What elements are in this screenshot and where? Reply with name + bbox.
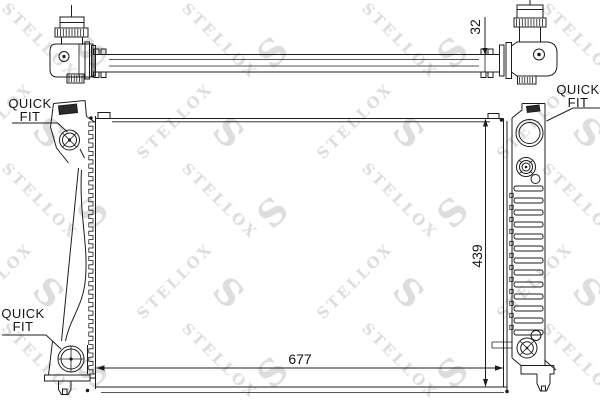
right-pipe-connector <box>500 0 558 84</box>
pipe-barbs <box>94 49 493 78</box>
dimension-label-677: 677 <box>283 352 317 366</box>
tank-rung <box>514 246 543 251</box>
left-brackets <box>45 101 96 395</box>
tank-rung <box>514 186 543 191</box>
dimension-label-32: 32 <box>468 14 482 40</box>
quick-fit-label-bottom-left: QUICK FIT <box>0 307 46 333</box>
dimension-label-439: 439 <box>470 241 484 271</box>
quick-fit-port-top-right <box>516 120 543 147</box>
right-tank <box>492 104 556 392</box>
quick-fit-label-top-right: QUICK FIT <box>553 83 600 109</box>
pipe-assembly <box>94 49 500 78</box>
tank-rung <box>514 222 543 227</box>
core-serrated-edge <box>89 122 96 374</box>
leader-lines <box>2 108 600 349</box>
dimension-pipe-32 <box>482 17 487 72</box>
mount-peg-right <box>537 374 550 391</box>
tank-rung <box>514 234 543 239</box>
drawing-canvas: STELLOXSSTELLOXSSTELLOXSSTELLOXSSTELLOXS… <box>0 0 600 400</box>
tank-rung <box>514 294 543 299</box>
quick-fit-line2: FIT <box>553 96 600 109</box>
mount-peg-left <box>59 381 72 395</box>
tank-rung <box>514 282 543 287</box>
quick-fit-line2: FIT <box>0 320 46 333</box>
tank-rung <box>514 318 543 323</box>
tank-rung <box>514 306 543 311</box>
quick-fit-line2: FIT <box>6 110 54 123</box>
left-pipe-connector <box>50 5 96 83</box>
tank-rung <box>514 270 543 275</box>
quick-fit-label-top-left: QUICK FIT <box>6 97 54 123</box>
tank-rung <box>514 198 543 203</box>
leader-top-left <box>12 123 68 132</box>
radiator-line-art <box>0 0 600 400</box>
tank-rung <box>514 258 543 263</box>
tank-rung <box>514 210 543 215</box>
